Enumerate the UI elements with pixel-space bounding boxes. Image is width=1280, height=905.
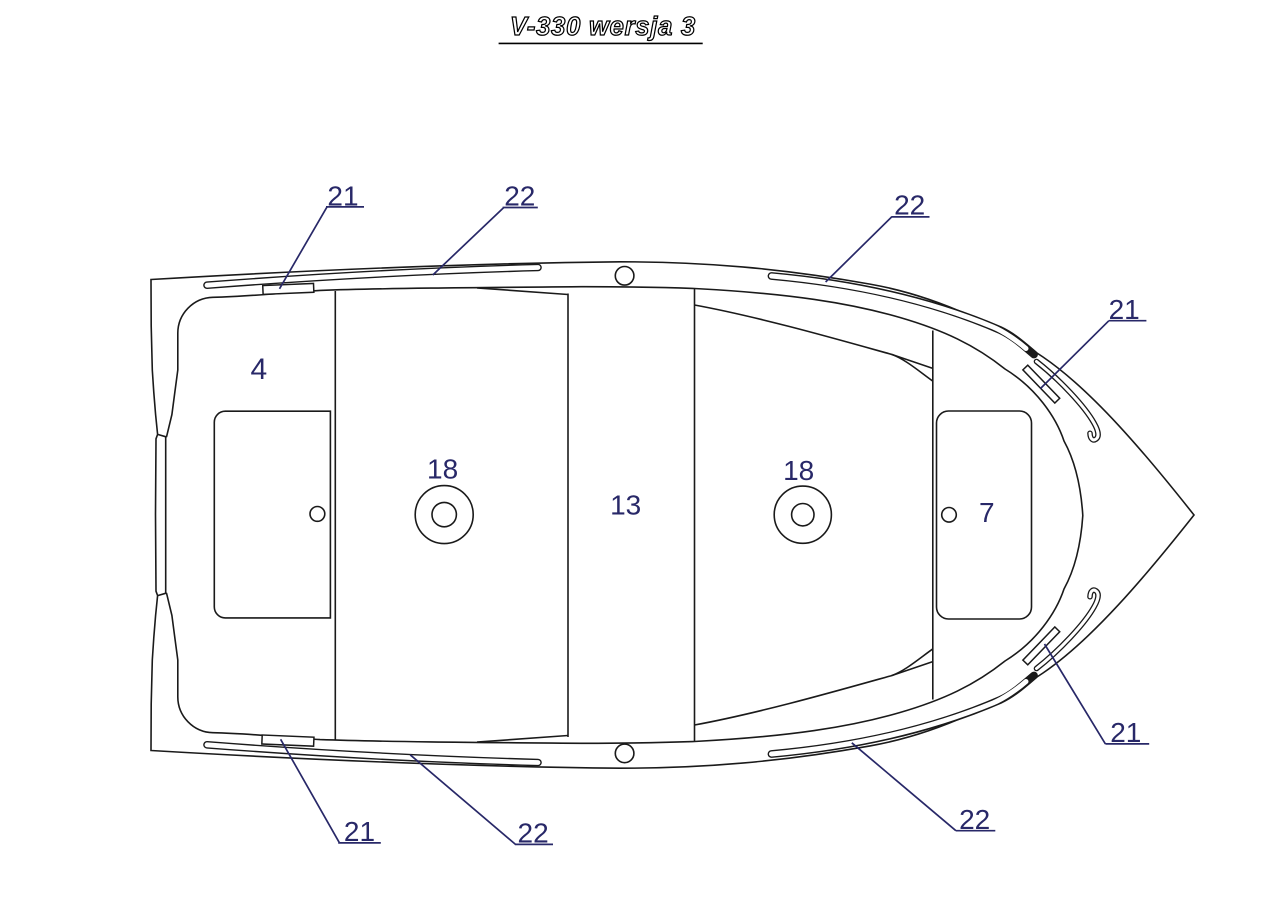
svg-text:22: 22: [894, 189, 925, 220]
svg-text:7: 7: [979, 497, 995, 528]
svg-text:22: 22: [959, 804, 990, 835]
svg-text:4: 4: [250, 353, 267, 386]
svg-text:21: 21: [344, 816, 375, 847]
svg-text:21: 21: [1109, 294, 1140, 325]
svg-text:V-330 wersja 3: V-330 wersja 3: [510, 13, 696, 41]
svg-text:18: 18: [783, 455, 814, 486]
svg-text:21: 21: [1110, 717, 1141, 748]
svg-text:22: 22: [504, 181, 535, 212]
svg-text:13: 13: [610, 489, 641, 520]
svg-text:22: 22: [518, 818, 549, 849]
svg-text:21: 21: [327, 181, 358, 212]
svg-text:18: 18: [427, 454, 458, 485]
